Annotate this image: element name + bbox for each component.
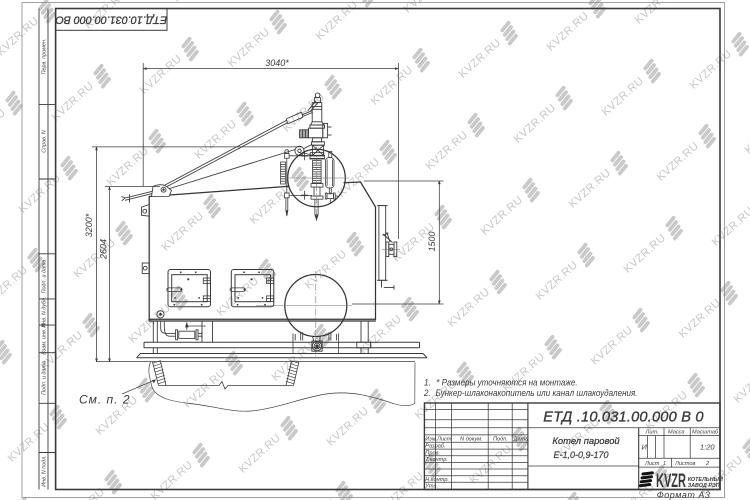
svg-text:ЗАВОД РЭП: ЗАВОД РЭП bbox=[688, 483, 720, 489]
svg-text:Изм.: Изм. bbox=[425, 436, 437, 442]
svg-text:Инв. N подл.: Инв. N подл. bbox=[42, 455, 48, 487]
svg-text:Лист: Лист bbox=[644, 461, 660, 467]
svg-text:Бункер-шлаконакопитель или кан: Бункер-шлаконакопитель или канал шлакоуд… bbox=[436, 387, 638, 398]
svg-text:Н.контр.: Н.контр. bbox=[425, 477, 449, 483]
svg-text:Масштаб: Масштаб bbox=[692, 430, 719, 436]
svg-text:Подп. и дата: Подп. и дата bbox=[42, 361, 48, 395]
svg-text:Масса: Масса bbox=[668, 430, 685, 436]
svg-text:Лит.: Лит. bbox=[645, 430, 659, 436]
svg-text:Разраб.: Разраб. bbox=[425, 444, 445, 450]
svg-text:3200*: 3200* bbox=[84, 213, 94, 237]
svg-text:2604: 2604 bbox=[99, 239, 109, 260]
svg-text:См. п. 2: См. п. 2 bbox=[79, 393, 131, 407]
svg-text:KVZR: KVZR bbox=[656, 471, 686, 492]
svg-text:Лист: Лист bbox=[436, 436, 452, 442]
svg-text:ЕТД.10.031.00.000 ВО: ЕТД.10.031.00.000 ВО bbox=[55, 14, 167, 26]
svg-text:2.: 2. bbox=[423, 387, 431, 398]
svg-text:ЕТД .10.031.00.000 В 0: ЕТД .10.031.00.000 В 0 bbox=[543, 410, 703, 426]
svg-text:1: 1 bbox=[663, 461, 666, 467]
svg-text:Справ. N: Справ. N bbox=[42, 130, 48, 153]
svg-text:Т.контр.: Т.контр. bbox=[425, 457, 448, 463]
svg-text:N докум.: N докум. bbox=[460, 436, 483, 442]
svg-text:Листов: Листов bbox=[674, 461, 695, 467]
svg-text:* Размеры уточняются на монтаж: * Размеры уточняются на монтаже. bbox=[436, 377, 577, 388]
svg-text:КОТЕЛЬНЫЙ: КОТЕЛЬНЫЙ bbox=[688, 475, 723, 483]
svg-text:Взам. инв. N: Взам. инв. N bbox=[42, 323, 48, 355]
svg-text:Е-1,0-0,9-170: Е-1,0-0,9-170 bbox=[553, 450, 608, 460]
svg-text:Перв. примен.: Перв. примен. bbox=[42, 39, 48, 75]
svg-text:Дата: Дата bbox=[513, 436, 529, 442]
svg-text:И: И bbox=[642, 443, 648, 452]
svg-text:1500: 1500 bbox=[427, 231, 437, 251]
svg-text:Инв. N дубл.: Инв. N дубл. bbox=[42, 296, 48, 327]
svg-text:Котел паровой: Котел паровой bbox=[552, 435, 620, 446]
svg-text:Подп. и дата: Подп. и дата bbox=[42, 260, 48, 294]
svg-text:1.: 1. bbox=[424, 377, 431, 388]
svg-text:Подп.: Подп. bbox=[493, 436, 508, 442]
svg-text:Пров.: Пров. bbox=[425, 450, 440, 456]
svg-text:Утв.: Утв. bbox=[424, 484, 438, 490]
svg-text:1:20: 1:20 bbox=[700, 443, 715, 452]
svg-text:3040*: 3040* bbox=[265, 58, 289, 68]
